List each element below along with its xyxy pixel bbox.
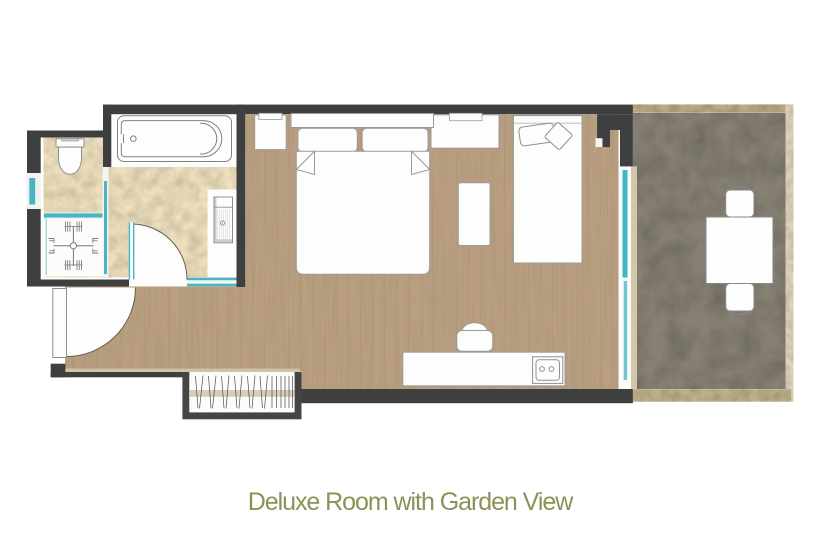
svg-text:Deluxe Room with Garden View: Deluxe Room with Garden View <box>248 488 574 516</box>
